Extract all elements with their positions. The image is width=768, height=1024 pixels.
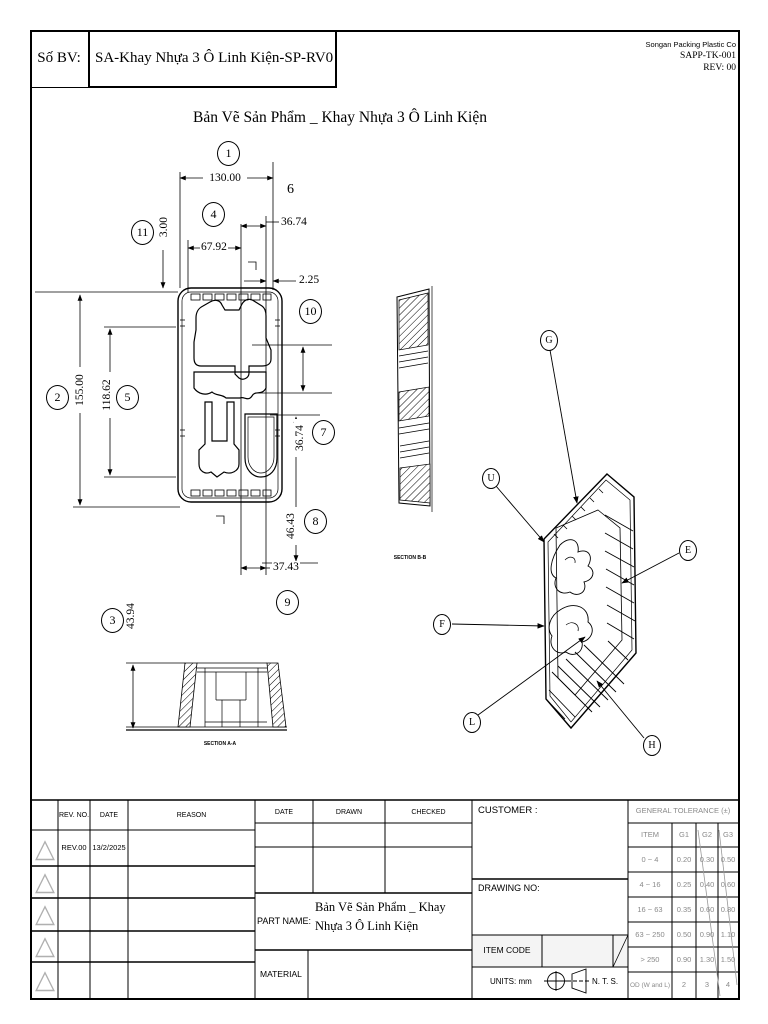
part-name-value: Bản Vẽ Sản Phẩm _ Khay Nhựa 3 Ô Linh Kiệ… <box>315 898 467 936</box>
balloon-11: 11 <box>131 220 154 245</box>
dim-130: 130.00 <box>203 172 247 184</box>
tolerance-cell: 0.90 <box>696 930 718 939</box>
tolerance-cell: 3 <box>696 980 718 989</box>
rev-no-header: REV. NO. <box>58 811 90 820</box>
balloon-G: G <box>540 330 558 351</box>
tolerance-cell: 0.20 <box>672 855 696 864</box>
balloon-1: 1 <box>217 141 240 166</box>
dim-2-25: 2.25 <box>298 274 320 286</box>
tolerance-cell: 0.60 <box>696 905 718 914</box>
page-title: Bản Vẽ Sản Phẩm _ Khay Nhựa 3 Ô Linh Kiệ… <box>160 109 520 127</box>
material-label: MATERIAL <box>260 969 302 980</box>
balloon-F: F <box>433 614 451 635</box>
tolerance-cell: 0.40 <box>696 880 718 889</box>
tolerance-cell: 0.25 <box>672 880 696 889</box>
revision-triangle-icon: △ <box>31 899 59 927</box>
balloon-2: 2 <box>46 385 69 410</box>
revision-triangle-icon: △ <box>31 834 59 862</box>
tolerance-cell: 2 <box>672 980 696 989</box>
tolerance-header-item: ITEM <box>628 830 672 839</box>
tolerance-cell: 0 ~ 4 <box>628 855 672 864</box>
tolerance-cell: 1.10 <box>718 930 738 939</box>
tolerance-cell: 1.50 <box>718 955 738 964</box>
tolerance-header-g2: G2 <box>696 830 718 839</box>
dim-118-62: 118.62 <box>101 372 113 418</box>
dim-36-74-top: 36.74 <box>280 216 308 228</box>
tolerance-cell: 4 ~ 16 <box>628 880 672 889</box>
drawing-code-box: SA-Khay Nhựa 3 Ô Linh Kiện-SP-RV0 <box>88 30 337 88</box>
company-name: Songan Packing Plastic Co <box>524 40 736 50</box>
part-name-label: PART NAME: <box>257 916 311 927</box>
tolerance-header-g3: G3 <box>718 830 738 839</box>
revision-triangle-icon: △ <box>31 867 59 895</box>
rev-row-rev: REV.00 <box>58 843 90 852</box>
revision-triangle-icon: △ <box>31 931 59 959</box>
tolerance-cell: 4 <box>718 980 738 989</box>
balloon-U: U <box>482 468 500 489</box>
tolerance-header-g1: G1 <box>672 830 696 839</box>
balloon-L: L <box>463 712 481 733</box>
tolerance-cell: 0.35 <box>672 905 696 914</box>
label-6: 6 <box>286 184 295 196</box>
dim-46-43: 46.43 <box>285 507 297 545</box>
dim-37-43: 37.43 <box>272 561 300 573</box>
rev-reason-header: REASON <box>128 811 255 820</box>
tolerance-cell: 16 ~ 63 <box>628 905 672 914</box>
tolerance-cell: 0.50 <box>672 930 696 939</box>
customer-label: CUSTOMER : <box>478 805 537 816</box>
balloon-4: 4 <box>202 202 225 227</box>
balloon-8: 8 <box>304 509 327 534</box>
company-block: Songan Packing Plastic Co SAPP-TK-001 RE… <box>524 40 736 74</box>
rev-row-date: 13/2/2025 <box>90 843 128 852</box>
dim-155-00: 155.00 <box>74 367 86 413</box>
section-a-label: SECTION A-A <box>195 741 245 747</box>
rev-date-header: DATE <box>90 811 128 820</box>
revision-code: REV: 00 <box>524 62 736 74</box>
item-code-label: ITEM CODE <box>472 945 542 956</box>
document-code: SAPP-TK-001 <box>524 50 736 62</box>
units-label: UNITS: mm <box>490 976 532 987</box>
balloon-5: 5 <box>116 385 139 410</box>
drawing-number-label: Số BV: <box>30 30 89 88</box>
revision-triangle-icon: △ <box>31 965 59 993</box>
balloon-7: 7 <box>312 420 335 445</box>
tolerance-cell: 0.60 <box>718 880 738 889</box>
tolerance-cell: 0.50 <box>718 855 738 864</box>
balloon-10: 10 <box>299 299 322 324</box>
dim-67-92: 67.92 <box>200 241 228 253</box>
tolerance-cell: 63 ~ 250 <box>628 930 672 939</box>
balloon-E: E <box>679 540 697 561</box>
dim-43-94: 43.94 <box>125 597 137 635</box>
tolerance-cell: 0.80 <box>718 905 738 914</box>
dim-36-74-right: 36.74 <box>294 419 306 457</box>
balloon-9: 9 <box>276 590 299 615</box>
drawing-no-label: DRAWING NO: <box>478 883 540 894</box>
checked-column-header: CHECKED <box>385 808 472 817</box>
tolerance-cell: OD (W and L) <box>628 981 672 990</box>
drawn-column-header: DRAWN <box>313 808 385 817</box>
tolerance-cell: 1.30 <box>696 955 718 964</box>
scale-label: N. T. S. <box>592 976 618 987</box>
tolerance-cell: 0.30 <box>696 855 718 864</box>
date-column-header: DATE <box>255 808 313 817</box>
section-b-label: SECTION B-B <box>385 555 435 561</box>
tolerance-cell: > 250 <box>628 955 672 964</box>
dim-3-00: 3.00 <box>158 211 170 243</box>
engineering-drawing-page: { "header": { "so_bv_label": "Số BV:", "… <box>0 0 768 1024</box>
tolerance-cell: 0.90 <box>672 955 696 964</box>
balloon-3: 3 <box>101 608 124 633</box>
tolerance-title: GENERAL TOLERANCE (±) <box>628 806 738 815</box>
balloon-H: H <box>643 735 661 756</box>
